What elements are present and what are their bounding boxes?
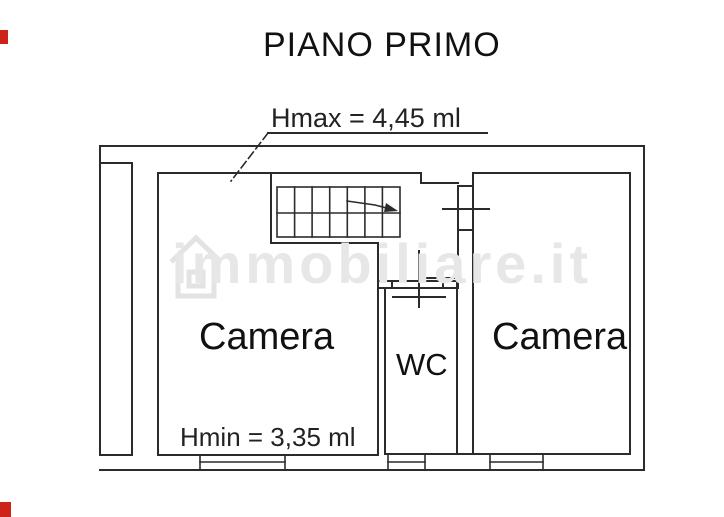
window-symbols bbox=[200, 455, 543, 470]
hmax-label: Hmax = 4,45 ml bbox=[271, 105, 461, 132]
room-label-camera-left: Camera bbox=[199, 318, 334, 356]
stairs-direction-arrow bbox=[347, 201, 398, 212]
stairs bbox=[277, 187, 400, 237]
plan-title: PIANO PRIMO bbox=[263, 28, 501, 62]
camera-left-walls bbox=[158, 173, 421, 455]
hmin-label: Hmin = 3,35 ml bbox=[180, 424, 356, 450]
red-edge-mark-bottom bbox=[0, 502, 11, 517]
watermark-text: immobiliare.it bbox=[172, 236, 592, 292]
camera-right-walls bbox=[457, 173, 630, 454]
room-label-wc: WC bbox=[396, 349, 448, 380]
room-label-camera-right: Camera bbox=[492, 318, 627, 356]
floor-plan-page: PIANO PRIMO Hmax = 4,45 ml immobiliare.i… bbox=[0, 0, 724, 517]
red-edge-mark-top bbox=[0, 30, 8, 44]
